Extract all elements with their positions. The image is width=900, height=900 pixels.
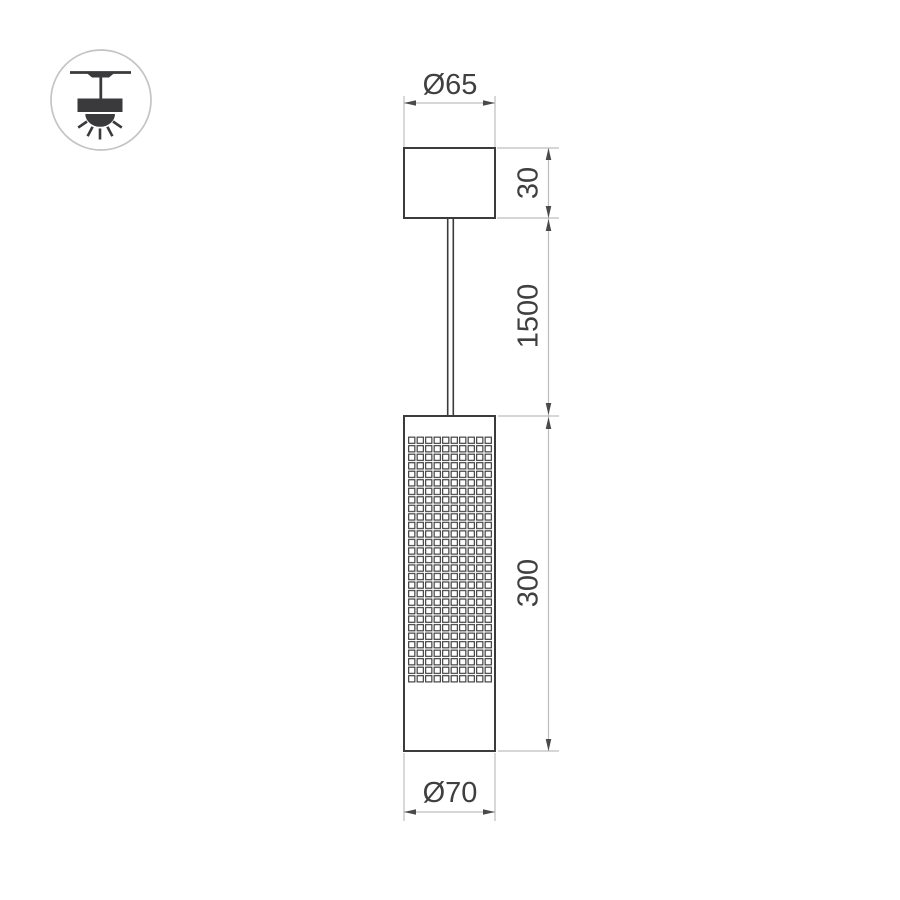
icon-lamp-body (78, 99, 123, 113)
icon-suspension-stem (99, 76, 102, 99)
canopy-height-label: 30 (513, 167, 545, 199)
arrow-left (404, 809, 416, 815)
suspension-length-label: 1500 (513, 284, 545, 349)
arrow-down (546, 206, 552, 218)
arrow-up (546, 417, 552, 429)
arrow-right (483, 100, 495, 106)
canopy-diameter-label: Ø65 (423, 69, 478, 101)
arrow-up (546, 219, 552, 231)
lamp-outline (404, 148, 495, 751)
pendant-lamp-dimension-drawing: Ø65 30 1500 300 Ø70 (0, 0, 900, 900)
body-height-label: 300 (513, 559, 545, 607)
technical-drawing-page: Ø65 30 1500 300 Ø70 (0, 0, 900, 900)
canopy-outline (404, 148, 495, 218)
arrow-left (404, 100, 416, 106)
perforated-mesh-grille (408, 436, 493, 683)
arrow-right (483, 809, 495, 815)
arrow-down (546, 739, 552, 751)
arrow-down (546, 403, 552, 415)
pendant-lamp-ceiling-mount-icon (51, 50, 151, 150)
body-diameter-label: Ø70 (423, 777, 478, 809)
arrow-up (546, 148, 552, 160)
